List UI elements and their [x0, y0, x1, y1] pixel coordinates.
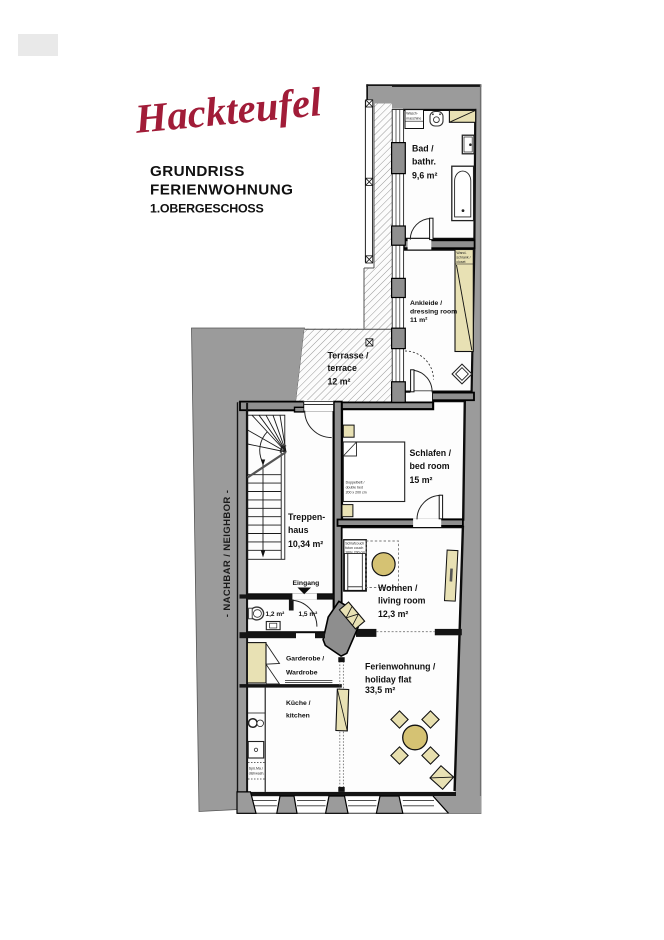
- svg-text:Bad /: Bad /: [412, 144, 434, 154]
- svg-text:- NACHBAR / NEIGHBOR -: - NACHBAR / NEIGHBOR -: [222, 490, 233, 618]
- svg-text:Garderobe /: Garderobe /: [286, 656, 324, 663]
- svg-text:FERIENWOHNUNG: FERIENWOHNUNG: [150, 182, 293, 199]
- svg-text:Schlafcouch /: Schlafcouch /: [345, 541, 366, 545]
- svg-text:Spü.Ma./: Spü.Ma./: [249, 767, 263, 771]
- svg-text:terrace: terrace: [328, 363, 357, 373]
- svg-text:living room: living room: [378, 596, 426, 606]
- svg-text:11 m²: 11 m²: [410, 317, 428, 324]
- svg-text:dressing room: dressing room: [410, 309, 457, 316]
- svg-text:1,5 m²: 1,5 m²: [299, 611, 319, 618]
- svg-text:futon couch: futon couch: [345, 546, 363, 550]
- svg-text:bathr.: bathr.: [412, 157, 436, 167]
- svg-text:kitchen: kitchen: [286, 713, 310, 720]
- svg-text:12 m²: 12 m²: [328, 377, 351, 387]
- svg-text:bed room: bed room: [410, 461, 450, 471]
- svg-text:Doppelbett /: Doppelbett /: [346, 481, 365, 485]
- svg-text:GRUNDRISS: GRUNDRISS: [150, 163, 245, 180]
- svg-text:maschine: maschine: [406, 116, 421, 120]
- svg-text:9,6 m²: 9,6 m²: [412, 171, 437, 181]
- svg-text:Schlafen /: Schlafen /: [410, 448, 452, 458]
- svg-text:10,34 m²: 10,34 m²: [288, 539, 323, 549]
- svg-text:Küche /: Küche /: [286, 700, 311, 707]
- svg-text:15 m²: 15 m²: [410, 475, 433, 485]
- svg-text:haus: haus: [288, 525, 309, 535]
- svg-text:200 x 200 cm: 200 x 200 cm: [346, 491, 367, 495]
- svg-text:double bed: double bed: [346, 486, 363, 490]
- svg-text:Ferienwohnung /: Ferienwohnung /: [365, 662, 436, 672]
- svg-text:Treppen-: Treppen-: [288, 512, 325, 522]
- svg-text:Wohnen /: Wohnen /: [378, 583, 418, 593]
- svg-text:160x 200 cm: 160x 200 cm: [345, 550, 365, 554]
- svg-text:33,5 m²: 33,5 m²: [365, 685, 395, 695]
- svg-text:Wardrobe: Wardrobe: [286, 670, 318, 677]
- svg-text:Wand-: Wand-: [456, 251, 467, 255]
- svg-text:Terrasse /: Terrasse /: [328, 351, 369, 361]
- svg-text:1.OBERGESCHOSS: 1.OBERGESCHOSS: [150, 202, 264, 216]
- svg-text:closet: closet: [456, 260, 465, 264]
- svg-text:Ankleide /: Ankleide /: [410, 300, 442, 307]
- svg-text:1,2 m²: 1,2 m²: [266, 611, 286, 618]
- svg-text:dishwash.: dishwash.: [249, 772, 265, 776]
- svg-text:Wasch-: Wasch-: [406, 111, 419, 115]
- svg-text:12,3 m²: 12,3 m²: [378, 609, 408, 619]
- svg-text:holiday flat: holiday flat: [365, 675, 412, 685]
- svg-text:schrank /: schrank /: [456, 256, 470, 260]
- svg-text:Eingang: Eingang: [293, 580, 320, 587]
